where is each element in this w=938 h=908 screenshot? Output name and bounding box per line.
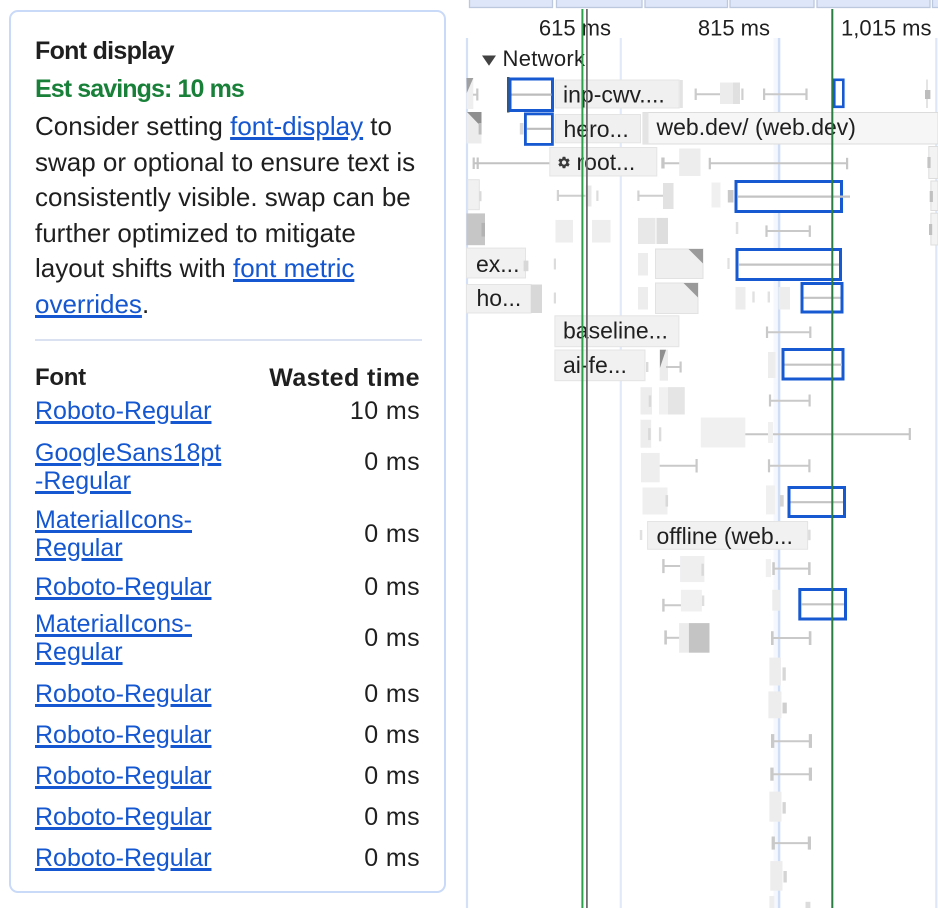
svg-text:root...: root... (577, 149, 636, 175)
svg-text:inp-cwv....: inp-cwv.... (563, 82, 665, 108)
svg-text:ho...: ho... (477, 285, 522, 311)
svg-text:ex...: ex... (476, 251, 519, 277)
svg-text:web.dev/ (web.dev): web.dev/ (web.dev) (656, 114, 856, 140)
svg-text:baseline...: baseline... (563, 318, 668, 344)
svg-text:1,015 ms: 1,015 ms (841, 16, 932, 41)
svg-text:Network: Network (503, 46, 586, 71)
svg-text:offline (web...: offline (web... (657, 523, 793, 549)
svg-text:ai-fe...: ai-fe... (563, 352, 627, 378)
svg-text:615 ms: 615 ms (539, 16, 611, 41)
svg-text:815 ms: 815 ms (698, 16, 770, 41)
svg-text:hero...: hero... (564, 116, 629, 142)
